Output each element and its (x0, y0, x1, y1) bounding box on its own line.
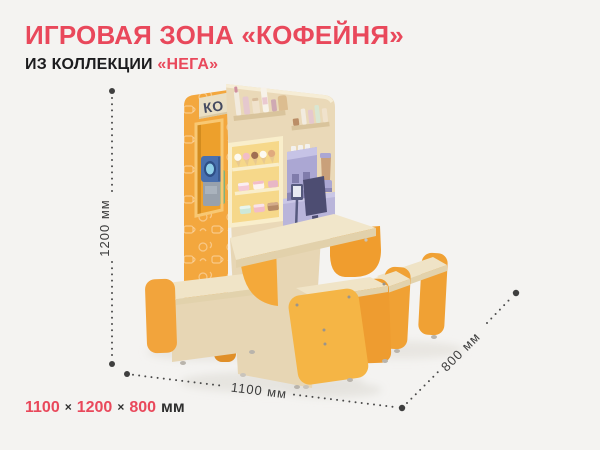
summary-width: 1100 (25, 399, 60, 416)
summary-depth: 800 (129, 399, 156, 416)
sign-text: КО (202, 97, 224, 116)
product-illustration: КО (0, 0, 600, 450)
bench-left-side-panel (145, 278, 178, 353)
product-card: ИГРОВАЯ ЗОНА «КОФЕЙНЯ» ИЗ КОЛЛЕКЦИИ «НЕГ… (0, 0, 600, 450)
dimensions-summary: 1100×1200×800мм (25, 399, 185, 417)
summary-height: 1200 (77, 399, 113, 416)
display-case-print (228, 136, 284, 228)
stool-front-face-panel (287, 287, 370, 386)
summary-unit: мм (161, 399, 185, 416)
height-dimension-label: 1200 мм (97, 199, 112, 256)
service-window (196, 120, 225, 216)
summary-separator: × (117, 400, 124, 414)
summary-separator: × (65, 400, 72, 414)
